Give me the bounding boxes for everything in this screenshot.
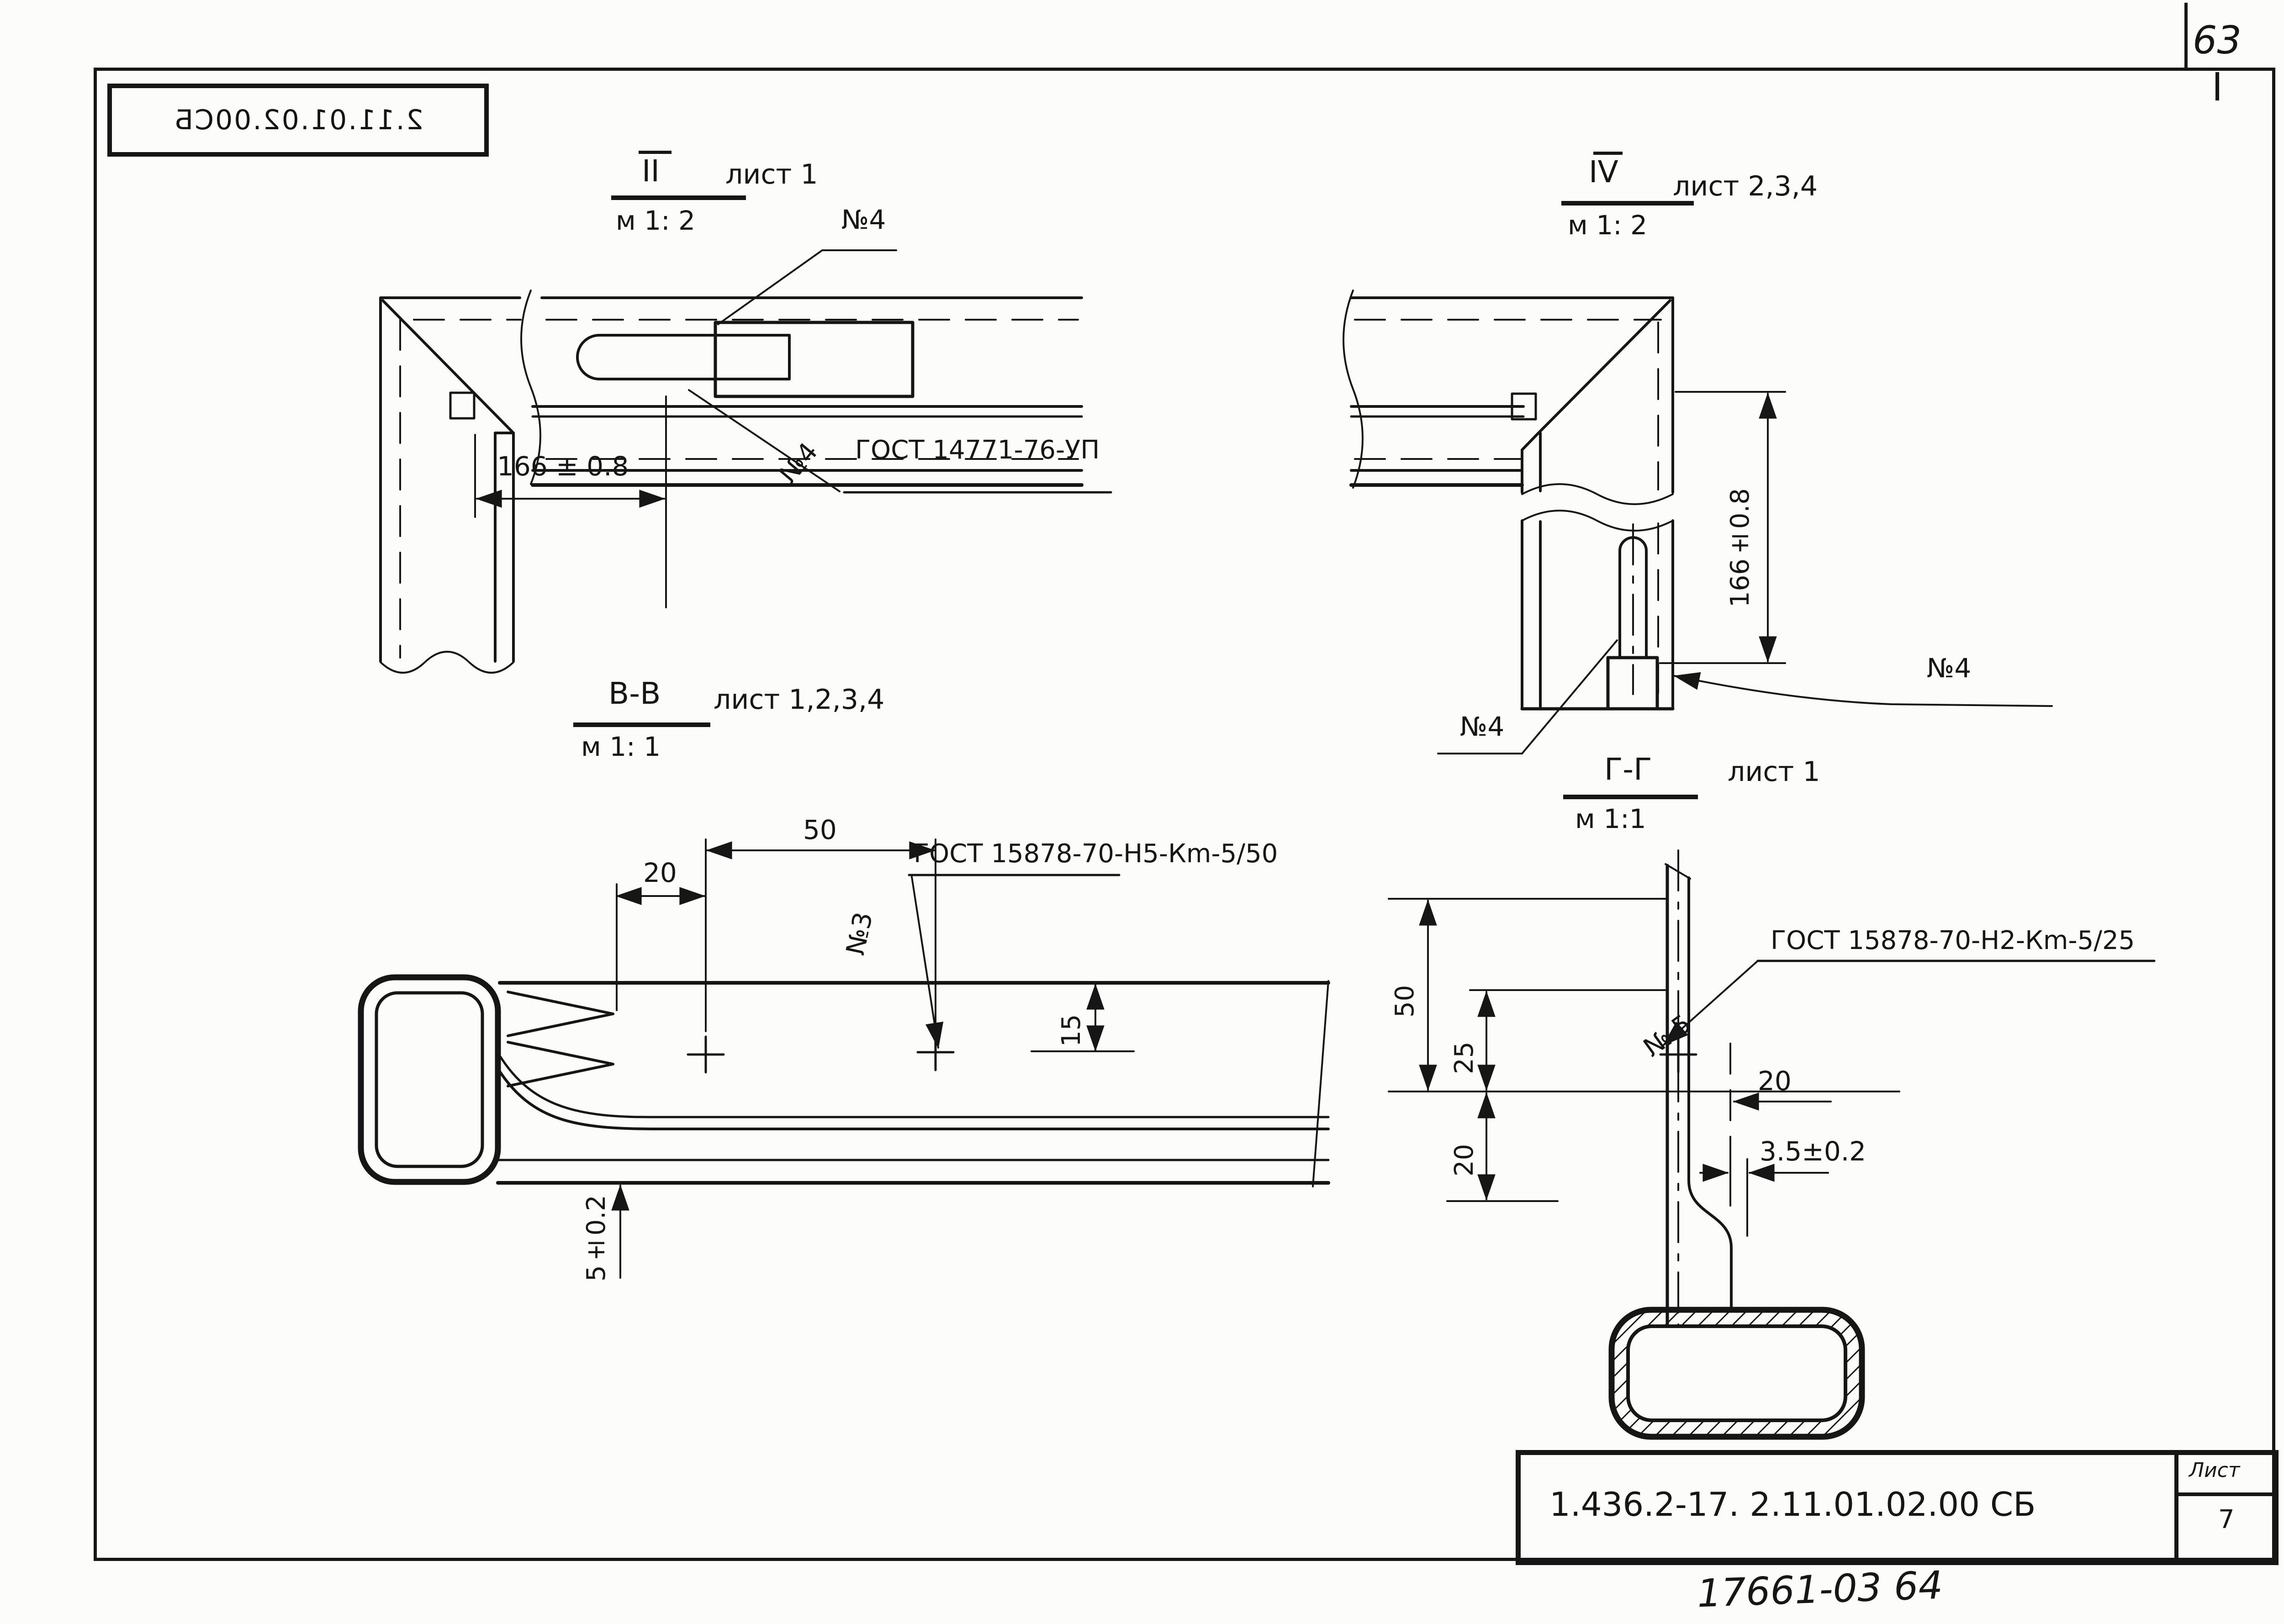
view-ii-label: II: [642, 156, 660, 186]
section-vv-label: В-В: [608, 679, 661, 709]
section-vv-fraction-bar: [573, 722, 710, 727]
view-ii-sheets: лист 1: [725, 161, 818, 188]
section-gg-dim-20-vert: 20: [1452, 1117, 1480, 1176]
section-gg-dim-50: 50: [1392, 958, 1421, 1018]
view-iv-scale: м 1: 2: [1568, 212, 1647, 238]
section-vv-dim-5: 5±0.2: [584, 1190, 612, 1281]
sheet-number: 7: [2218, 1507, 2235, 1533]
title-block-divider: [2174, 1451, 2178, 1560]
view-iv-sheets: лист 2,3,4: [1673, 173, 1818, 200]
title-block-sheet-divider: [2175, 1492, 2274, 1496]
section-gg-dim-25: 25: [1452, 1015, 1480, 1074]
document-number: 1.436.2-17. 2.11.01.02.00 СБ: [1549, 1488, 2036, 1521]
section-vv-sheets: лист 1,2,3,4: [714, 686, 884, 713]
section-gg-weld-spec: ГОСТ 15878-70-Н2-Кm-5/25: [1771, 928, 2135, 954]
section-gg-label: Г-Г: [1604, 754, 1652, 785]
sheet-label: Лист: [2189, 1461, 2240, 1481]
section-vv-weld-spec: ГОСТ 15878-70-Н5-Кm-5/50: [914, 841, 1278, 867]
view-iv-label: IV: [1589, 157, 1618, 187]
view-ii-dim-166: 166 ± 0.8: [497, 453, 629, 480]
view-ii-weld-spec: ГОСТ 14771-76-УП: [855, 438, 1100, 463]
page-number: 63: [2193, 21, 2242, 59]
section-gg-dim-20-horiz: 20: [1758, 1068, 1792, 1094]
view-ii-plate-callout: №4: [841, 206, 886, 233]
section-gg-fraction-bar: [1563, 795, 1698, 799]
back-stamp-text: 2.11.01.02.00СБ: [173, 88, 423, 152]
section-gg-scale: м 1:1: [1575, 806, 1646, 832]
view-ii-scale: м 1: 2: [616, 207, 695, 234]
sheet-border: [94, 68, 2275, 1561]
section-vv-dim-50: 50: [803, 817, 837, 843]
section-gg-dim-3-5: 3.5±0.2: [1760, 1138, 1866, 1165]
view-iv-callout-left: №4: [1460, 713, 1504, 740]
view-iv-dim-166: 166±0.8: [1728, 461, 1756, 607]
section-vv-scale: м 1: 1: [581, 733, 661, 760]
view-ii-fraction-bar: [611, 195, 746, 200]
section-vv-dim-20: 20: [643, 859, 677, 886]
back-stamp-box: 2.11.01.02.00СБ: [107, 84, 489, 157]
page-corner-tick: [2184, 3, 2188, 68]
page-corner-stub: [2215, 72, 2219, 100]
section-vv-dim-15: 15: [1059, 987, 1087, 1047]
view-iv-callout-right: №4: [1927, 655, 1971, 681]
section-gg-sheets: лист 1: [1728, 758, 1820, 786]
handwritten-note: 17661-03 64: [1697, 1566, 1944, 1613]
drawing-sheet: { "page": { "page_number": "63", "back_s…: [0, 0, 2284, 1624]
